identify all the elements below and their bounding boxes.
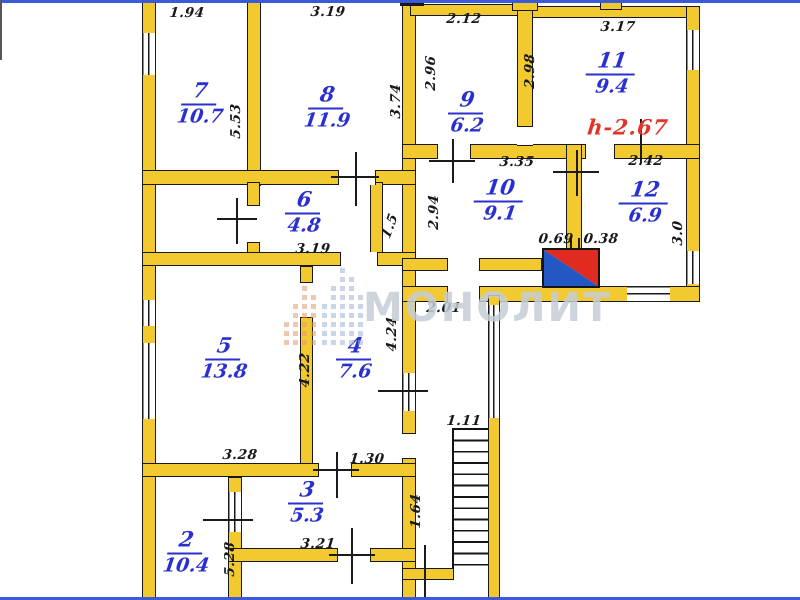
dimension-label: 1.94: [169, 5, 206, 21]
room-area: 13.8: [200, 363, 249, 382]
dimension-label: 0.38: [583, 231, 620, 247]
door-opening: [247, 205, 260, 243]
watermark-logo-dot: [349, 286, 354, 291]
watermark-logo-dot: [322, 313, 327, 318]
watermark-logo-dot: [349, 322, 354, 327]
tick: [203, 519, 253, 521]
room-number: 4: [336, 335, 374, 361]
room-area: 7.6: [336, 363, 373, 382]
room-number: 5: [205, 335, 243, 361]
watermark-logo-dot: [293, 313, 298, 318]
room-10-label: 109.1: [475, 177, 524, 224]
watermark-logo-dot: [331, 313, 336, 318]
window: [142, 300, 156, 326]
room-2-label: 210.4: [163, 529, 209, 576]
dimension-label: 2.42: [628, 153, 665, 169]
watermark-logo-dot: [340, 304, 345, 309]
dimension-label: 2.98: [522, 53, 538, 90]
watermark-logo-dot: [340, 268, 345, 273]
watermark-logo-dot: [358, 322, 363, 327]
window: [142, 33, 156, 75]
dimension-label: 2.01: [426, 300, 463, 316]
tick: [553, 171, 599, 173]
room-area: 9.1: [474, 205, 526, 224]
room-area: 4.8: [285, 217, 322, 236]
tick: [351, 528, 353, 584]
watermark-logo-dot: [358, 295, 363, 300]
watermark-logo-dot: [349, 313, 354, 318]
dimension-label: 3.28: [222, 447, 259, 463]
watermark-logo-dot: [284, 331, 289, 336]
scan-border-top: [0, 0, 800, 3]
window: [686, 251, 700, 284]
tick: [236, 198, 238, 244]
dimension-label: 2.96: [423, 55, 439, 92]
window: [488, 305, 500, 418]
watermark-logo-dot: [358, 304, 363, 309]
room-3-label: 35.3: [290, 479, 325, 526]
staircase: [452, 428, 488, 568]
watermark-logo-dot: [340, 295, 345, 300]
watermark-logo-dot: [322, 322, 327, 327]
room-number: 10: [474, 177, 527, 203]
wall: [247, 0, 261, 186]
watermark-logo-dot: [358, 313, 363, 318]
window: [402, 373, 416, 411]
room-number: 6: [285, 189, 323, 215]
wall: [370, 182, 383, 258]
room-5-label: 513.8: [201, 335, 247, 382]
dimension-label: 3.74: [388, 83, 404, 120]
watermark-logo-dot: [293, 340, 298, 345]
room-8-label: 811.9: [304, 84, 350, 131]
watermark-logo-dot: [349, 304, 354, 309]
scan-border-left: [0, 0, 2, 60]
room-12-label: 126.9: [620, 179, 669, 226]
tick: [217, 218, 257, 220]
dimension-label: 3.17: [600, 19, 637, 35]
watermark-logo-dot: [331, 340, 336, 345]
room-number: 11: [586, 50, 639, 76]
door-opening: [585, 144, 615, 159]
room-11-label: 119.4: [587, 50, 636, 97]
dimension-label: 3.21: [300, 536, 337, 552]
ceiling-height-note: h-2.67: [586, 115, 670, 140]
watermark-logo-dot: [322, 304, 327, 309]
room-number: 8: [308, 84, 346, 110]
room-area: 6.2: [448, 117, 485, 136]
window: [686, 30, 700, 70]
dimension-label: 4.22: [297, 352, 313, 389]
room-area: 6.9: [619, 207, 671, 226]
room-number: 3: [288, 479, 326, 505]
dimension-label: 5.53: [228, 103, 244, 140]
room-area: 10.4: [162, 557, 211, 576]
window: [142, 343, 156, 419]
tick: [378, 390, 428, 392]
dimension-label: 0.69: [538, 231, 575, 247]
dimension-label: 5.28: [222, 541, 238, 578]
room-7-label: 710.7: [177, 80, 223, 127]
dimension-label: 4.24: [384, 316, 400, 353]
dimension-label: 3.0: [670, 220, 686, 247]
watermark-logo-dot: [349, 295, 354, 300]
room-6-label: 64.8: [287, 189, 322, 236]
watermark-logo-dot: [322, 340, 327, 345]
room-area: 10.7: [176, 108, 225, 127]
watermark-logo-dot: [340, 277, 345, 282]
room-number: 9: [448, 89, 486, 115]
dimension-label: 1.64: [408, 493, 424, 530]
watermark-logo-dot: [331, 304, 336, 309]
room-area: 5.3: [288, 507, 325, 526]
room-area: 11.9: [303, 112, 352, 131]
room-4-label: 47.6: [338, 335, 373, 382]
dimension-label: 3.19: [295, 241, 332, 257]
tick: [313, 469, 359, 471]
stove-symbol: [542, 248, 600, 288]
tick: [429, 160, 475, 162]
tick: [329, 554, 375, 556]
watermark-logo-dot: [331, 322, 336, 327]
room-number: 2: [167, 529, 205, 555]
watermark-logo-dot: [293, 322, 298, 327]
door-opening: [340, 252, 378, 266]
tick: [355, 152, 357, 206]
tick: [331, 176, 379, 178]
room-number: 12: [619, 179, 672, 205]
door-opening: [437, 144, 471, 159]
room-number: 7: [181, 80, 219, 106]
window: [627, 286, 670, 302]
door-opening: [300, 282, 313, 318]
watermark-logo-dot: [293, 331, 298, 336]
dimension-label: 2.12: [446, 11, 483, 27]
tick: [576, 150, 578, 196]
tick: [424, 545, 426, 600]
watermark-logo-dot: [340, 313, 345, 318]
floor-plan-scan: h-2.67 МОНОЛИТ 710.7811.996.2119.4109.11…: [0, 0, 800, 600]
watermark-logo-dot: [331, 331, 336, 336]
door-opening: [402, 433, 416, 459]
dimension-label: 1.30: [349, 451, 386, 467]
dimension-label: 3.35: [499, 154, 536, 170]
watermark-logo-dot: [331, 295, 336, 300]
tick: [336, 452, 338, 498]
watermark-logo-dot: [349, 277, 354, 282]
door-2-3: [228, 492, 242, 532]
watermark-logo-dot: [340, 286, 345, 291]
door-opening: [447, 258, 480, 271]
wall: [402, 568, 454, 580]
door-opening: [517, 126, 533, 146]
room-9-label: 96.2: [450, 89, 485, 136]
dimension-label: 3.19: [310, 4, 347, 20]
watermark-logo-dot: [284, 322, 289, 327]
watermark-logo-dot: [340, 322, 345, 327]
watermark-logo-dot: [284, 340, 289, 345]
watermark-logo-dot: [293, 304, 298, 309]
dimension-label: 2.94: [426, 194, 442, 231]
room-area: 9.4: [586, 78, 638, 97]
dimension-label: 1.11: [446, 413, 483, 429]
watermark-logo-dot: [331, 286, 336, 291]
watermark-logo-dot: [322, 331, 327, 336]
